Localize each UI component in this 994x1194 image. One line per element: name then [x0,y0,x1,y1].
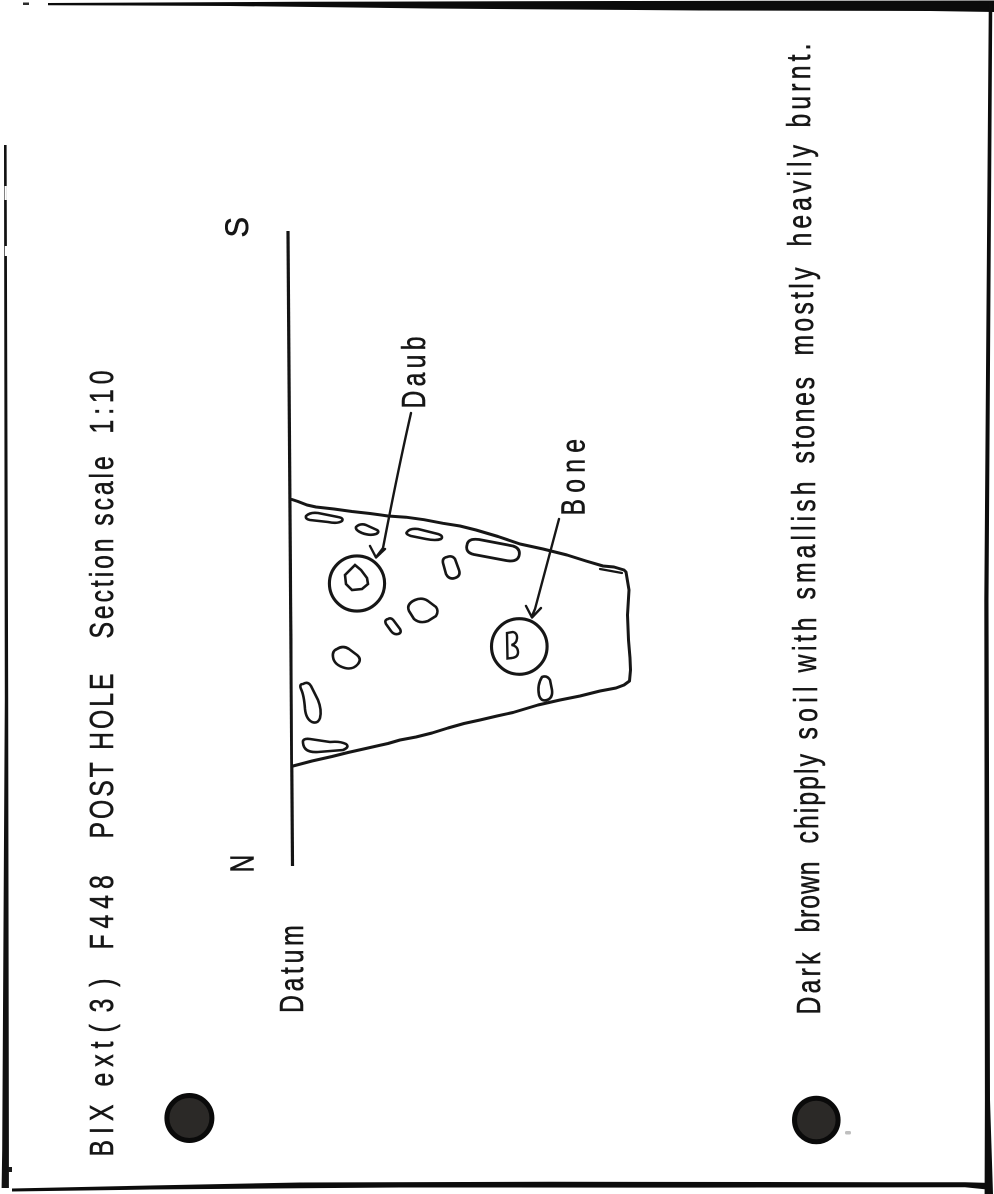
svg-text:Section scale: Section scale [85,456,121,638]
svg-text:POST HOLE: POST HOLE [85,674,121,839]
svg-text:brown: brown [791,861,827,932]
svg-text:burnt.: burnt. [782,43,818,127]
svg-text:mostly: mostly [785,267,821,355]
svg-text:Dark: Dark [792,952,828,1014]
svg-text:Datum: Datum [275,925,311,1013]
svg-text:N: N [225,855,261,873]
svg-text:1:10: 1:10 [85,371,121,434]
svg-text:BIX: BIX [85,1105,121,1157]
svg-text:( 3 ): ( 3 ) [85,979,121,1033]
svg-text:S: S [218,217,255,238]
svg-text:ext: ext [85,1042,121,1087]
